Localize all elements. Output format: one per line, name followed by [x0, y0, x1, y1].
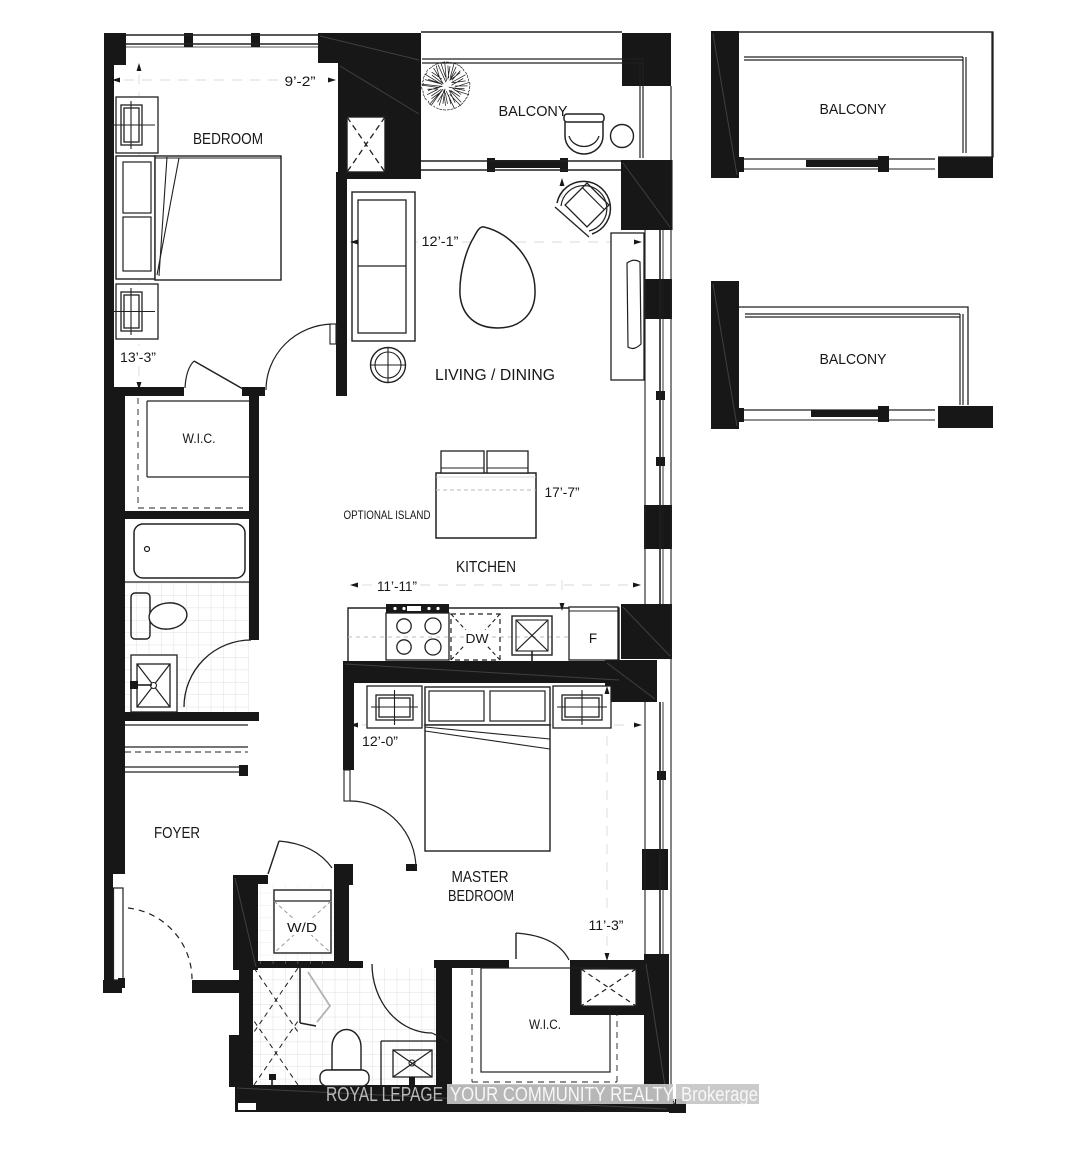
svg-text:KITCHEN: KITCHEN — [456, 559, 516, 576]
svg-text:W.I.C.: W.I.C. — [529, 1017, 561, 1032]
svg-text:12’-1”: 12’-1” — [422, 234, 459, 249]
svg-text:13’-3”: 13’-3” — [120, 350, 156, 365]
svg-text:BALCONY: BALCONY — [499, 104, 568, 120]
svg-text:11’-3”: 11’-3” — [589, 918, 624, 933]
svg-text:BALCONY: BALCONY — [820, 102, 887, 118]
svg-text:OPTIONAL ISLAND: OPTIONAL ISLAND — [344, 510, 431, 522]
svg-text:12’-0”: 12’-0” — [362, 734, 398, 749]
svg-text:FOYER: FOYER — [154, 825, 200, 842]
svg-text:MASTER: MASTER — [452, 869, 509, 886]
svg-text:BALCONY: BALCONY — [820, 352, 887, 368]
svg-text:9’-2”: 9’-2” — [285, 74, 316, 89]
svg-text:ROYAL LEPAGE: ROYAL LEPAGE — [326, 1083, 443, 1106]
svg-text:F: F — [589, 631, 597, 646]
svg-text:11’-11”: 11’-11” — [377, 579, 417, 594]
svg-text:17’-7”: 17’-7” — [545, 485, 580, 500]
svg-text:LIVING / DINING: LIVING / DINING — [435, 367, 555, 384]
svg-text:W.I.C.: W.I.C. — [183, 431, 216, 446]
svg-text:BEDROOM: BEDROOM — [193, 131, 263, 148]
svg-text:W/D: W/D — [287, 920, 317, 935]
svg-text:BEDROOM: BEDROOM — [448, 888, 514, 905]
svg-text:YOUR COMMUNITY REALTY, Brokera: YOUR COMMUNITY REALTY, Brokerage — [450, 1083, 758, 1106]
svg-text:DW: DW — [466, 631, 490, 646]
